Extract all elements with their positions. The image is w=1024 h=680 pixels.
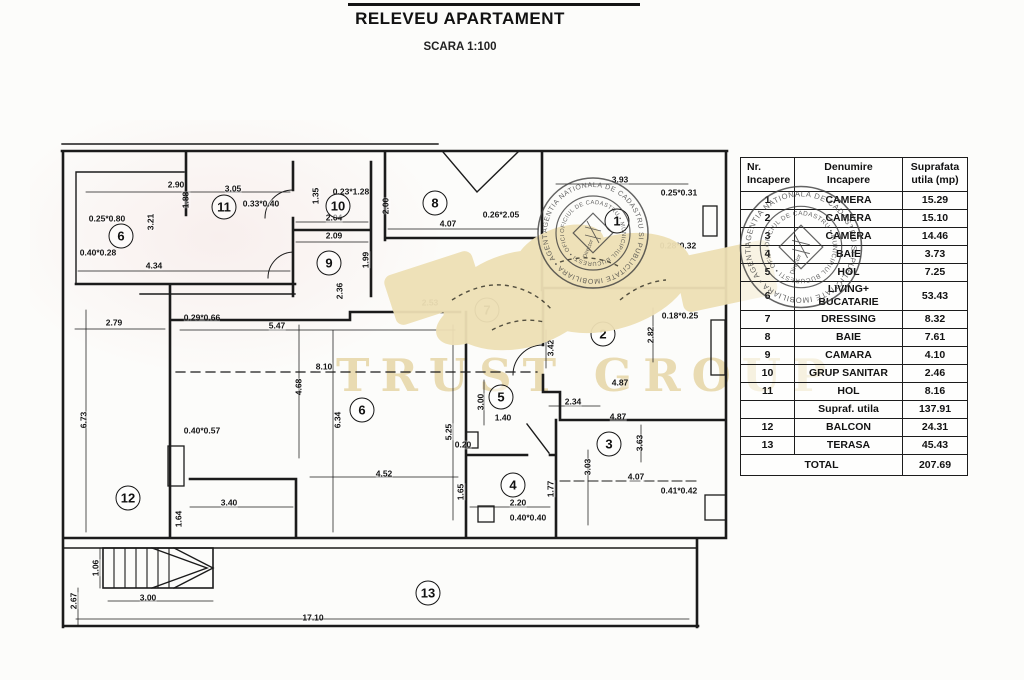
- notary-stamps: AGENTIA NATIONALA DE CADASTRU SI PUBLICI…: [0, 0, 1024, 680]
- stamp-director-text: Director: [790, 254, 803, 276]
- stamp-table: AGENTIA NATIONALA DE CADASTRU SI PUBLICI…: [741, 187, 862, 308]
- stamp-director-text: Director: [582, 239, 595, 259]
- svg-text:OFICIUL DE CADASTRU • MUNICIPI: OFICIUL DE CADASTRU • MUNICIPIUL BUCURES…: [764, 210, 838, 284]
- svg-text:AGENTIA NATIONALA DE CADASTRU: AGENTIA NATIONALA DE CADASTRU SI PUBLICI…: [542, 182, 644, 284]
- stamp-ring-text: AGENTIA NATIONALA DE CADASTRU SI PUBLICI…: [542, 182, 644, 284]
- stamp-inner-text: OFICIUL DE CADASTRU • MUNICIPIUL BUCURES…: [560, 200, 626, 266]
- stamp-plan: AGENTIA NATIONALA DE CADASTRU SI PUBLICI…: [538, 178, 648, 288]
- stamp-inner-text: OFICIUL DE CADASTRU • MUNICIPIUL BUCURES…: [764, 210, 838, 284]
- svg-text:OFICIUL DE CADASTRU • MUNICIPI: OFICIUL DE CADASTRU • MUNICIPIUL BUCURES…: [560, 200, 626, 266]
